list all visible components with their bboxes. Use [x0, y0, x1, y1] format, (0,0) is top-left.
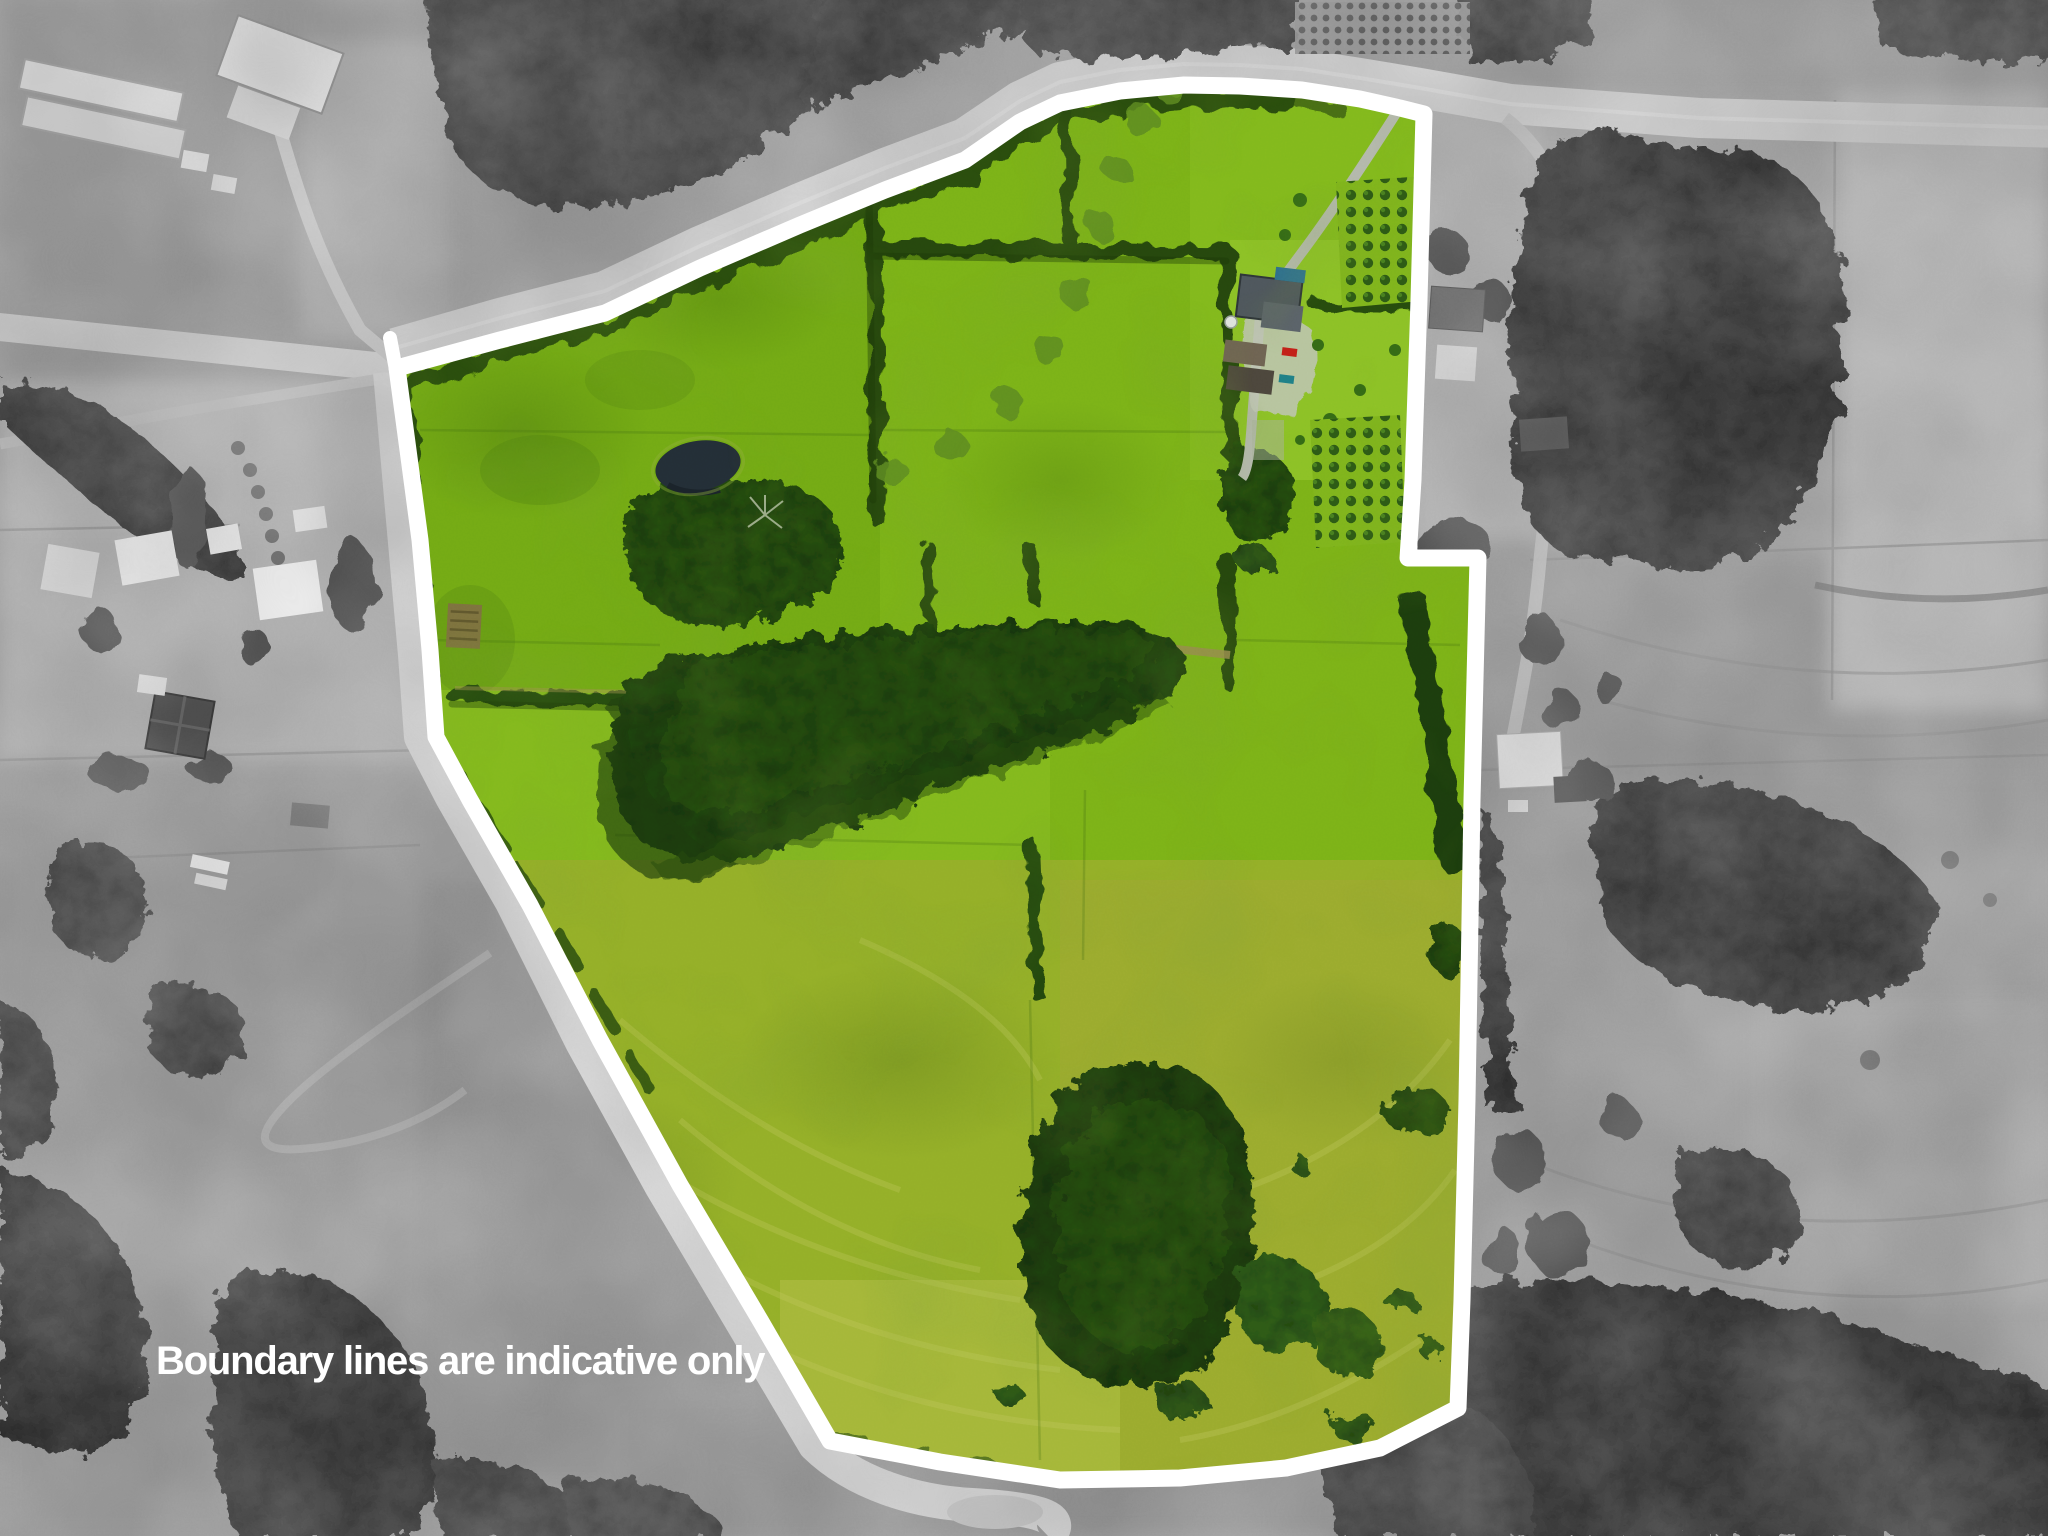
svg-text:Boundary lines are indicative: Boundary lines are indicative only: [156, 1339, 766, 1383]
